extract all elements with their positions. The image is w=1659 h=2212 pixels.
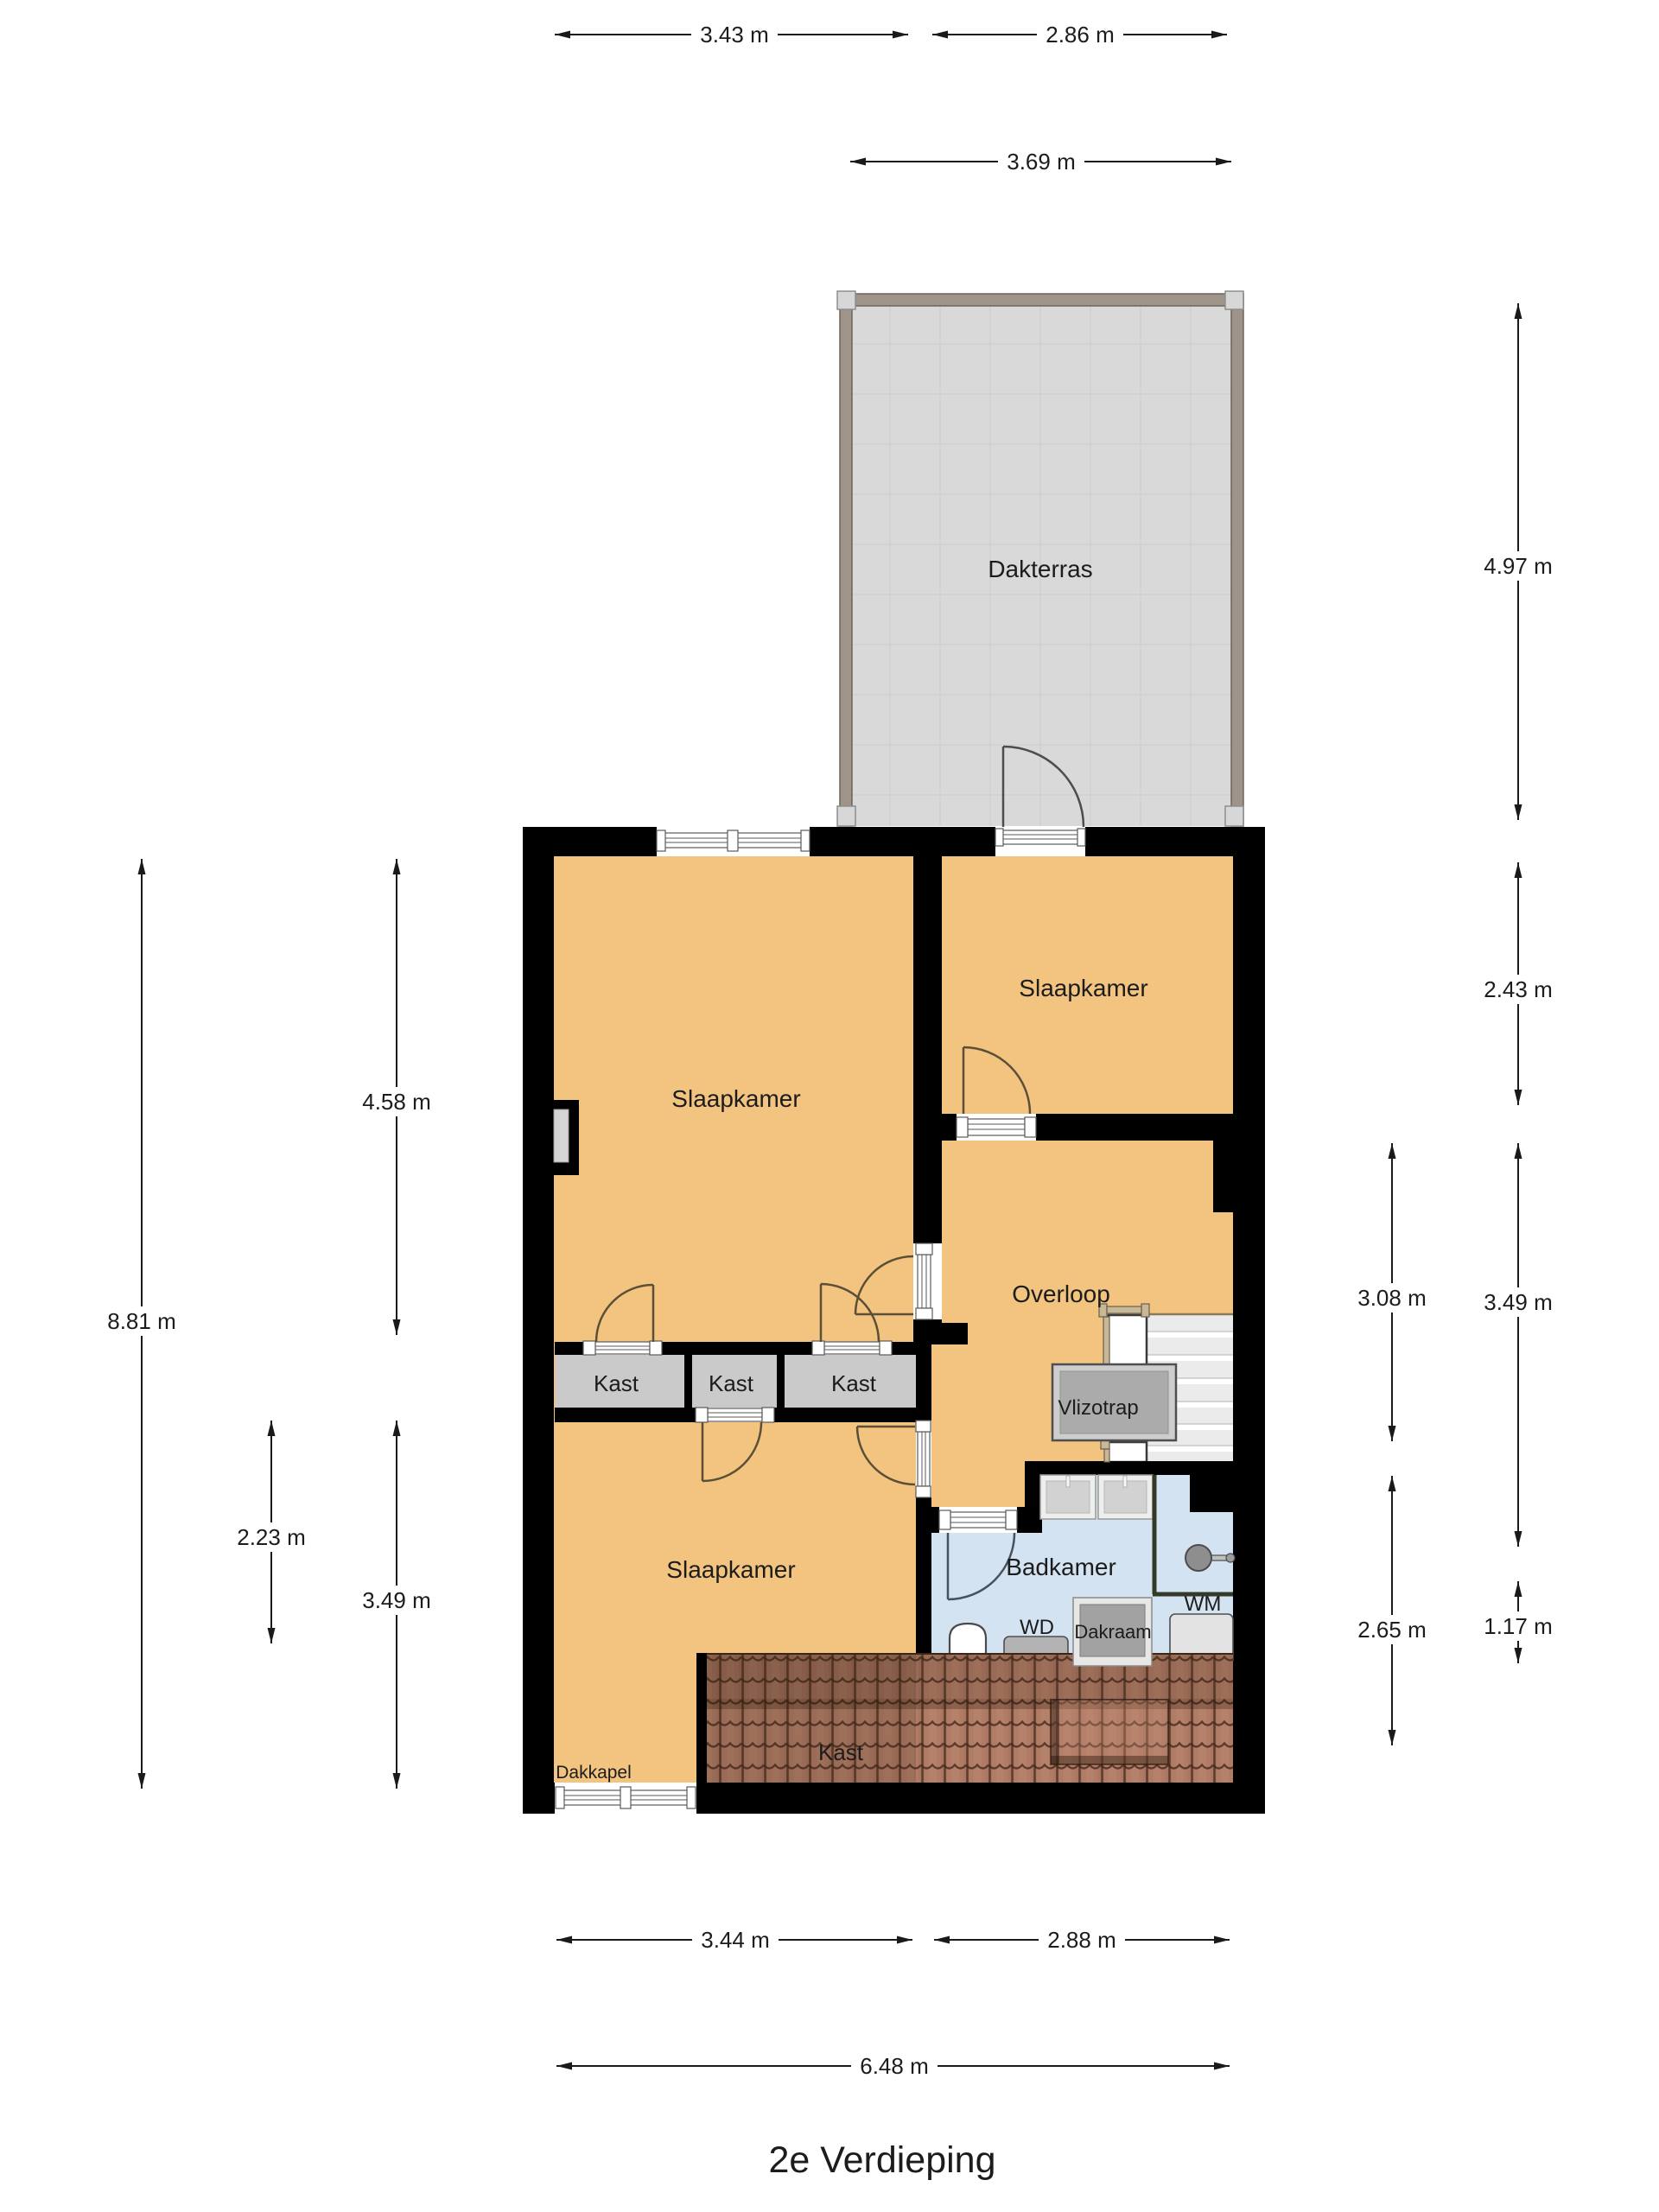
svg-text:2.43 m: 2.43 m	[1484, 976, 1553, 1002]
svg-text:3.49 m: 3.49 m	[1484, 1289, 1553, 1315]
svg-text:Overloop: Overloop	[1012, 1281, 1110, 1307]
svg-text:Kast: Kast	[594, 1370, 639, 1396]
svg-text:2.86 m: 2.86 m	[1046, 22, 1115, 48]
svg-text:Kast: Kast	[709, 1370, 754, 1396]
svg-text:3.49 m: 3.49 m	[362, 1587, 431, 1613]
svg-text:Badkamer: Badkamer	[1006, 1554, 1116, 1580]
svg-text:2.23 m: 2.23 m	[237, 1524, 306, 1550]
svg-text:Slaapkamer: Slaapkamer	[666, 1556, 795, 1583]
svg-text:1.17 m: 1.17 m	[1484, 1613, 1553, 1639]
svg-text:8.81 m: 8.81 m	[107, 1308, 176, 1334]
svg-text:4.97 m: 4.97 m	[1484, 553, 1553, 579]
svg-text:3.08 m: 3.08 m	[1357, 1285, 1427, 1311]
svg-text:6.48 m: 6.48 m	[860, 2053, 929, 2079]
svg-text:Dakraam: Dakraam	[1074, 1621, 1151, 1643]
svg-text:Kast: Kast	[818, 1739, 864, 1765]
svg-text:Kast: Kast	[831, 1370, 877, 1396]
svg-text:3.69 m: 3.69 m	[1007, 149, 1076, 175]
svg-text:2.65 m: 2.65 m	[1357, 1617, 1427, 1643]
svg-text:Slaapkamer: Slaapkamer	[1019, 975, 1147, 1001]
svg-text:Vlizotrap: Vlizotrap	[1058, 1396, 1138, 1420]
svg-text:WD: WD	[1020, 1616, 1054, 1639]
svg-text:2e Verdieping: 2e Verdieping	[769, 2139, 996, 2181]
svg-text:3.43 m: 3.43 m	[700, 22, 769, 48]
svg-text:Dakterras: Dakterras	[988, 556, 1092, 582]
svg-text:3.44 m: 3.44 m	[701, 1927, 770, 1953]
svg-text:WM: WM	[1185, 1592, 1222, 1616]
svg-text:4.58 m: 4.58 m	[362, 1089, 431, 1115]
svg-text:Slaapkamer: Slaapkamer	[671, 1085, 800, 1112]
svg-text:Dakkapel: Dakkapel	[556, 1763, 632, 1783]
svg-text:2.88 m: 2.88 m	[1047, 1927, 1116, 1953]
